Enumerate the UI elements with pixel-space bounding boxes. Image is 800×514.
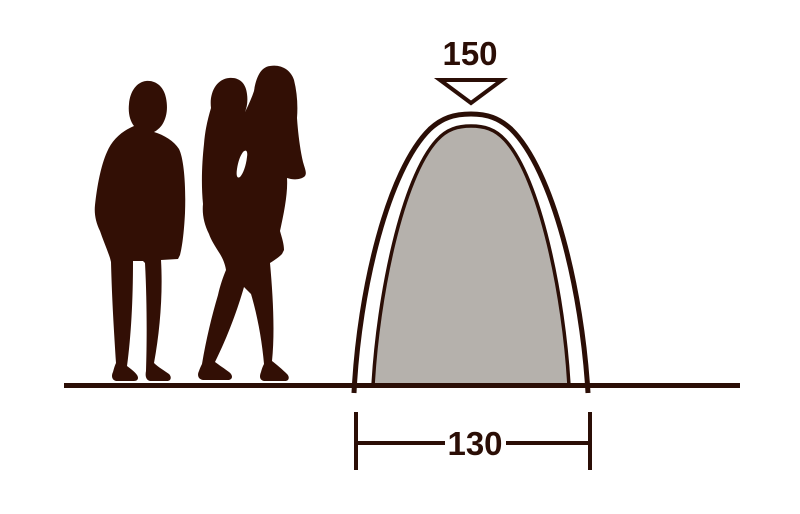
adult-carrying-child-silhouette bbox=[198, 66, 306, 381]
ground-line bbox=[64, 383, 740, 388]
tent-dimension-diagram: 150 130 bbox=[0, 0, 800, 514]
height-arrow-icon bbox=[440, 80, 502, 103]
width-value-label: 130 bbox=[447, 425, 502, 462]
width-dimension: 130 bbox=[356, 412, 590, 470]
diagram-canvas: 150 130 bbox=[0, 0, 800, 514]
height-value-label: 150 bbox=[442, 35, 497, 72]
adult-silhouette bbox=[95, 81, 186, 381]
